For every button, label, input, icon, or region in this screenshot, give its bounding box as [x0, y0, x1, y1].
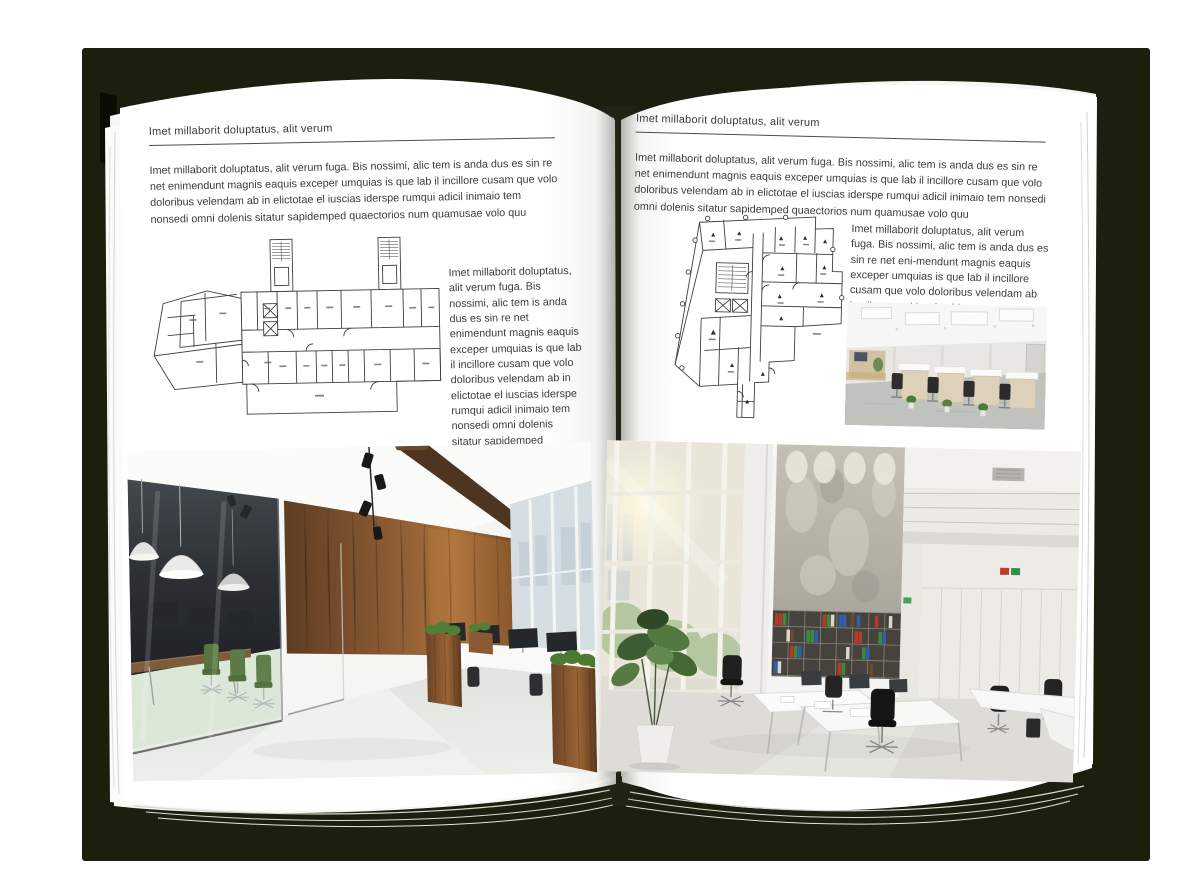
open-book [0, 0, 1200, 891]
magazine-mockup: Imet millaborit doluptatus, alit verum I… [0, 0, 1200, 891]
right-page [621, 85, 1097, 811]
left-page [120, 79, 617, 811]
